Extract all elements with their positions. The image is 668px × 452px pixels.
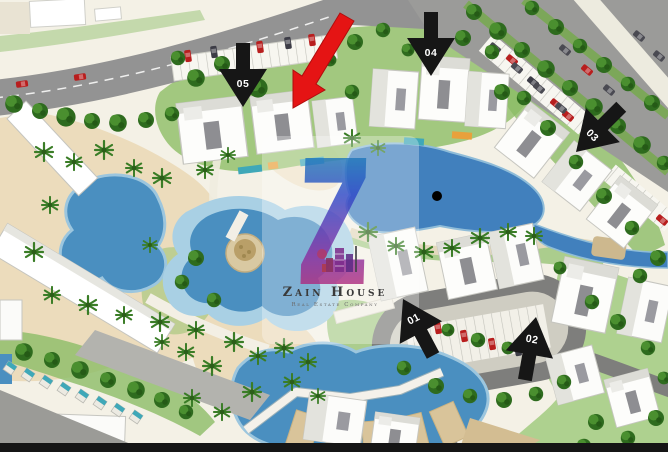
watermark-company-name: Zain House	[283, 285, 388, 300]
marker-02-label: 02	[525, 333, 540, 347]
site-plan-image: Z Zain House Real Estate Company 05 04 0…	[0, 0, 668, 452]
marker-04-label: 04	[425, 47, 438, 59]
watermark: Z Zain House Real Estate Company	[262, 125, 419, 344]
location-dot	[432, 191, 442, 201]
bottom-bar	[0, 443, 668, 452]
watermark-tagline: Real Estate Company	[292, 302, 379, 308]
master-plan-svg: Z Zain House Real Estate Company 05 04 0…	[0, 0, 668, 452]
marker-05-label: 05	[237, 78, 250, 90]
